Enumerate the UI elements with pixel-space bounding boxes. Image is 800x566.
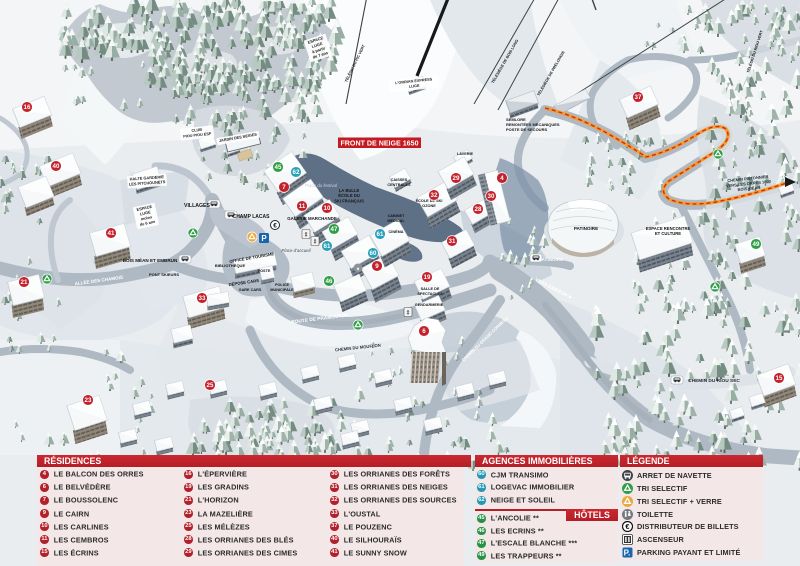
svg-text:♦: ♦ xyxy=(357,266,360,272)
svg-text:PATINOIRE: PATINOIRE xyxy=(574,226,598,231)
svg-text:⇕: ⇕ xyxy=(312,238,317,245)
svg-text:GENDARMERIE: GENDARMERIE xyxy=(415,303,444,307)
svg-text:61: 61 xyxy=(377,231,384,238)
svg-text:40: 40 xyxy=(53,163,60,170)
svg-text:GALERIE MARCHANDE: GALERIE MARCHANDE xyxy=(287,216,337,221)
svg-text:BIBLIOTHÈQUE: BIBLIOTHÈQUE xyxy=(215,263,246,268)
svg-text:CINÉMA: CINÉMA xyxy=(389,229,404,234)
svg-text:POSTE: POSTE xyxy=(258,269,271,273)
svg-text:P: P xyxy=(261,234,267,243)
svg-text:PATINOIRE: PATINOIRE xyxy=(539,257,563,262)
svg-text:6: 6 xyxy=(422,328,426,335)
svg-text:30: 30 xyxy=(488,193,495,200)
svg-text:ET CULTURE: ET CULTURE xyxy=(655,231,681,236)
svg-text:POSTE DE SECOURS: POSTE DE SECOURS xyxy=(506,127,547,132)
svg-text:VILLAGES: VILLAGES xyxy=(184,203,210,209)
svg-text:SPECTACLES: SPECTACLES xyxy=(417,292,443,296)
svg-text:Place d'accueil: Place d'accueil xyxy=(281,248,311,253)
svg-text:49: 49 xyxy=(753,241,760,248)
svg-text:MÉDICAL: MÉDICAL xyxy=(387,218,405,223)
svg-text:19: 19 xyxy=(424,274,431,281)
svg-text:SKI FRANÇAIS: SKI FRANÇAIS xyxy=(334,198,364,203)
svg-text:60: 60 xyxy=(370,250,377,257)
svg-text:62: 62 xyxy=(293,169,300,176)
svg-text:31: 31 xyxy=(449,238,456,245)
svg-text:25: 25 xyxy=(207,382,214,389)
svg-text:CHEMIN DU RIOU SEC: CHEMIN DU RIOU SEC xyxy=(688,378,740,384)
svg-text:46: 46 xyxy=(326,278,333,285)
svg-text:POLICE: POLICE xyxy=(275,283,290,287)
svg-text:23: 23 xyxy=(85,397,92,404)
svg-text:ÉCOLE DE SKI: ÉCOLE DE SKI xyxy=(416,198,443,203)
svg-text:29: 29 xyxy=(453,175,460,182)
svg-text:37: 37 xyxy=(635,94,642,101)
svg-text:4: 4 xyxy=(500,175,504,182)
svg-text:41: 41 xyxy=(108,230,115,237)
svg-text:CABINET: CABINET xyxy=(388,214,406,218)
svg-text:47: 47 xyxy=(331,226,338,233)
svg-text:CHAMP LACAS: CHAMP LACAS xyxy=(233,214,271,220)
svg-text:GARE CARS: GARE CARS xyxy=(239,288,262,292)
svg-text:CAISSES: CAISSES xyxy=(391,178,408,182)
svg-text:45: 45 xyxy=(275,164,282,171)
svg-text:⇕: ⇕ xyxy=(303,231,308,238)
svg-text:10: 10 xyxy=(324,205,331,212)
svg-text:FRONT DE NEIGE 1650: FRONT DE NEIGE 1650 xyxy=(340,140,418,148)
svg-text:32: 32 xyxy=(431,192,438,199)
svg-text:€: € xyxy=(273,223,277,230)
svg-text:CENTRALES: CENTRALES xyxy=(387,183,411,187)
svg-text:21: 21 xyxy=(21,279,28,286)
svg-text:28: 28 xyxy=(475,206,482,213)
svg-text:MUNICIPALE: MUNICIPALE xyxy=(270,288,294,292)
svg-text:⇕: ⇕ xyxy=(405,309,410,316)
svg-text:PONT SKIEURS: PONT SKIEURS xyxy=(149,272,179,277)
svg-text:OZONE: OZONE xyxy=(422,204,436,208)
svg-text:16: 16 xyxy=(24,104,31,111)
svg-text:€: € xyxy=(625,523,630,532)
svg-text:7: 7 xyxy=(282,184,286,191)
svg-text:15: 15 xyxy=(776,375,783,382)
svg-text:33: 33 xyxy=(199,295,206,302)
svg-text:P.: P. xyxy=(624,549,631,558)
svg-text:11: 11 xyxy=(299,203,306,210)
svg-text:Place du festival: Place du festival xyxy=(305,183,338,188)
svg-text:61: 61 xyxy=(324,243,331,250)
svg-text:BOIS MÉAN ET EMBRUN: BOIS MÉAN ET EMBRUN xyxy=(123,256,178,263)
svg-text:LAVERIE: LAVERIE xyxy=(457,152,474,156)
svg-text:9: 9 xyxy=(375,263,379,270)
svg-text:SALLE DE: SALLE DE xyxy=(421,287,440,291)
